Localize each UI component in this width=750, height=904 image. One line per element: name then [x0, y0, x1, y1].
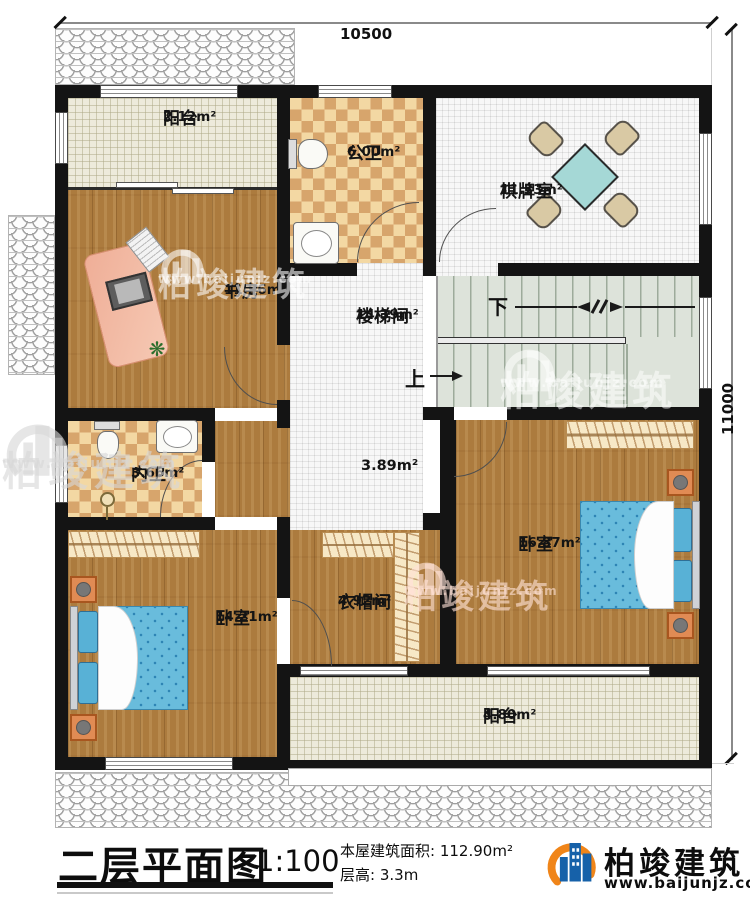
- wall-study-right-stub: [277, 400, 290, 428]
- stair-arrow-line: [625, 306, 695, 308]
- wall-hall-cloakroom-stub: [423, 513, 456, 530]
- room-area: 11.33m²: [500, 183, 563, 199]
- roof-tiles-top: [55, 28, 295, 85]
- pillow-icon: [672, 508, 692, 552]
- game-table-group: [520, 122, 650, 234]
- dimension-width-label: 10500: [340, 25, 392, 43]
- nightstand-icon: [70, 576, 97, 603]
- brand-logo-icon: [545, 836, 601, 892]
- wardrobe-cloakroom-top: [322, 532, 394, 558]
- stair-arrowhead-right: [610, 302, 623, 312]
- wardrobe-bedroom-right: [566, 421, 694, 449]
- floor-vestibule: [215, 421, 290, 517]
- stair-railing: [436, 337, 626, 344]
- room-area: 11.96m²: [224, 283, 287, 299]
- pillow-icon: [78, 611, 98, 653]
- stair-up-label: 上: [405, 363, 425, 392]
- nightstand-icon: [667, 469, 694, 496]
- brand-url: www.baijunjz.com: [604, 874, 750, 892]
- toilet-tank: [94, 421, 120, 430]
- window-public-bath: [318, 85, 392, 98]
- room-area: 3.66m²: [131, 466, 184, 482]
- balcony-door-cloakroom: [300, 666, 408, 676]
- plant-icon: ❋: [146, 338, 168, 360]
- dimension-height-label: 11000: [719, 383, 737, 435]
- wall-publicbath-bottom: [290, 263, 357, 276]
- bed-left: [70, 606, 188, 710]
- wall-innerbath-bottom: [55, 517, 215, 530]
- building-area-label: 本屋建筑面积:: [340, 842, 435, 860]
- wardrobe-cloakroom-right: [394, 532, 420, 662]
- chair-icon: [525, 119, 566, 160]
- toilet-bowl: [298, 139, 328, 169]
- room-area: 16.87m²: [518, 536, 581, 552]
- title-underline-light: [57, 892, 333, 894]
- room-area: 2.12m²: [163, 110, 216, 126]
- chair-icon: [601, 189, 642, 230]
- roof-tiles-left: [8, 215, 55, 375]
- room-area: 14.39m²: [356, 308, 419, 324]
- room-area: 14.21m²: [215, 610, 278, 626]
- drawing-scale: 1:100: [256, 844, 340, 878]
- window-stairwell-right: [699, 297, 712, 389]
- sink-icon: [293, 222, 339, 264]
- window-balcony-top-left: [55, 112, 68, 164]
- stairwell-edge: [436, 276, 438, 407]
- extension-line: [711, 28, 712, 85]
- window-game-room-right: [699, 133, 712, 225]
- stair-down-label: 下: [488, 291, 508, 320]
- wall-bedroom-right-top-a: [423, 407, 454, 420]
- bed-headboard: [70, 606, 78, 710]
- sliding-door-panel: [172, 188, 234, 194]
- sink-basin: [301, 230, 332, 257]
- floor-drain-icon: [100, 492, 115, 507]
- building-area-value: 112.90m²: [440, 842, 513, 860]
- floor-plan: ❋: [0, 0, 750, 904]
- dimension-line-top: [60, 22, 712, 24]
- window-inner-bath-left: [55, 445, 68, 503]
- balcony-door-bedroom-right: [487, 666, 650, 676]
- toilet-icon: [288, 136, 330, 172]
- wall-corner-stub: [423, 263, 436, 276]
- stair-up-arrow: [430, 375, 452, 377]
- floor-drain-stem: [106, 507, 108, 520]
- bed-blanket-fold: [634, 501, 674, 609]
- room-area: 4.92m²: [338, 594, 391, 610]
- pillow-icon: [78, 662, 98, 704]
- stair-arrow-line: [515, 306, 577, 308]
- floor-height-value: 3.3m: [380, 866, 418, 884]
- extension-line: [712, 763, 734, 764]
- window-bedroom-left-bottom: [105, 757, 233, 770]
- window-balcony-top: [100, 85, 238, 98]
- wardrobe-bedroom-left: [68, 531, 200, 558]
- building-area-row: 本屋建筑面积: 112.90m²: [340, 840, 513, 861]
- stair-lower-flight: [436, 344, 626, 407]
- nightstand-icon: [667, 612, 694, 639]
- wall-publicbath-right: [423, 85, 436, 263]
- wall-bedroom-left-right-upper: [277, 517, 290, 598]
- sliding-door-panel: [116, 182, 178, 188]
- chair-icon: [601, 117, 642, 158]
- wall-study-right: [277, 190, 290, 345]
- stair-up-arrowhead: [452, 371, 463, 381]
- balcony-bottom-railing-band: [288, 768, 712, 786]
- title-underline: [57, 882, 333, 888]
- wall-bedroom-left-right-lower: [277, 665, 290, 770]
- floor-stair-hall: [290, 263, 423, 530]
- toilet-bowl: [97, 431, 119, 459]
- room-area: 6.00m²: [347, 145, 400, 161]
- pillow-icon: [672, 560, 692, 602]
- toilet-icon: [92, 421, 124, 463]
- sink-basin: [163, 426, 192, 448]
- bed-headboard: [692, 501, 700, 609]
- toilet-tank: [288, 139, 297, 169]
- stair-landing-divider: [626, 344, 628, 407]
- floor-height-row: 层高: 3.3m: [340, 864, 418, 885]
- stair-arrowhead-left: [577, 302, 590, 312]
- wall-left: [55, 85, 68, 770]
- wall-bedroom-right-top-b: [507, 407, 699, 420]
- monitor-screen: [114, 278, 144, 304]
- sink-icon: [156, 420, 198, 453]
- room-area: 3.89m²: [361, 458, 418, 475]
- floor-height-label: 层高:: [340, 866, 375, 884]
- wall-gameroom-bottom: [498, 263, 699, 276]
- room-area: 4.80m²: [483, 708, 536, 724]
- nightstand-icon: [70, 714, 97, 741]
- bed-right: [580, 501, 700, 609]
- wall-innerbath-right: [202, 408, 215, 462]
